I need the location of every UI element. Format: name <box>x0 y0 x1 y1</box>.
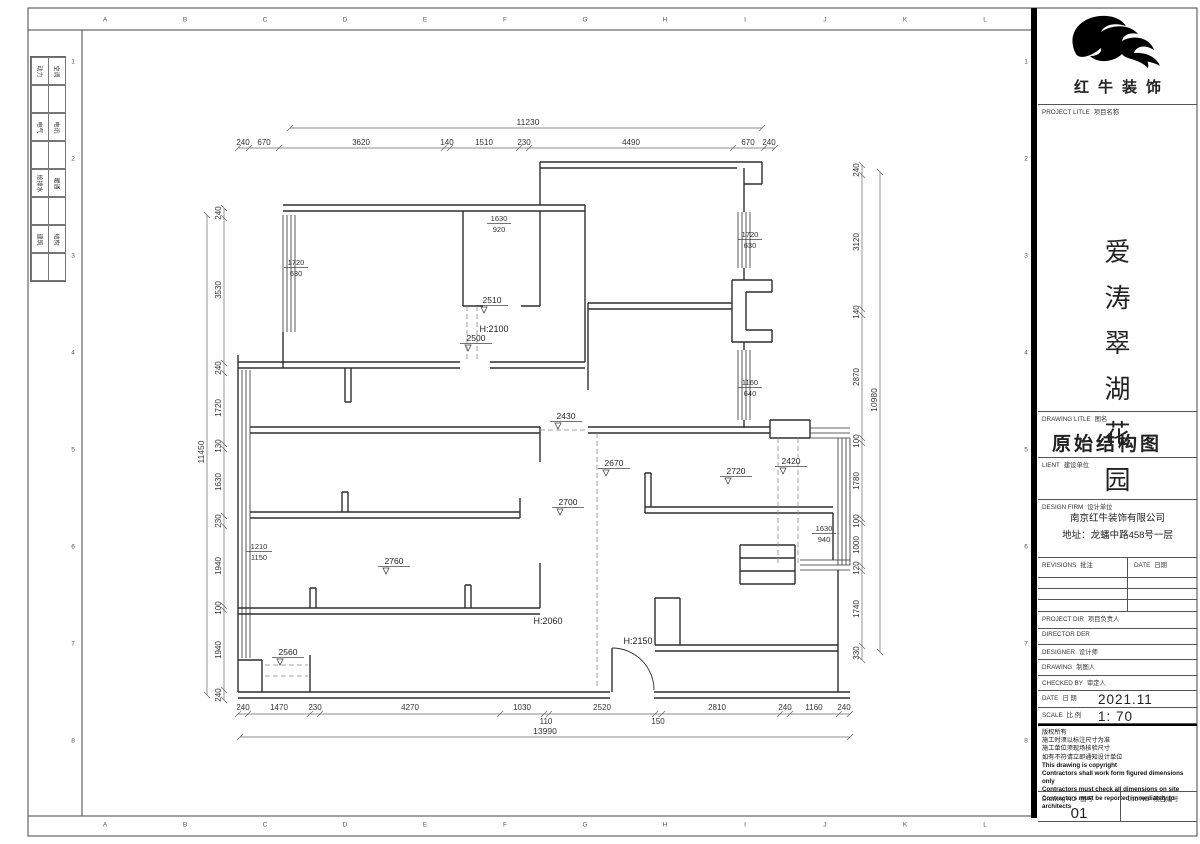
grid-number-left: 3 <box>71 253 75 260</box>
dim-label: 670 <box>257 138 271 147</box>
revisions-row <box>1038 600 1197 612</box>
grid-number-right: 3 <box>1024 253 1028 260</box>
dim-total-left: 11450 <box>196 440 206 463</box>
dim-label: 1470 <box>270 703 288 712</box>
grid-number-right: 1 <box>1024 59 1028 66</box>
svg-text:2760: 2760 <box>385 556 404 566</box>
dim-label: 140 <box>852 305 861 319</box>
dim-label: 3120 <box>852 233 861 251</box>
svg-text:1630: 1630 <box>816 524 833 533</box>
svg-text:2500: 2500 <box>467 333 486 343</box>
grid-letter-bottom: G <box>582 822 587 829</box>
dim-label: 240 <box>236 138 250 147</box>
grid-letter-top: G <box>582 17 587 24</box>
dashed-lines <box>265 306 798 688</box>
dim-label: 2870 <box>852 368 861 386</box>
dim-label: 240 <box>214 688 223 702</box>
grid-number-right: 4 <box>1024 350 1028 357</box>
revisions-row <box>1038 589 1197 600</box>
svg-text:630: 630 <box>290 269 303 278</box>
dim-label: 130 <box>214 439 223 453</box>
grid-letter-bottom: L <box>983 822 987 829</box>
grid-number-left: 1 <box>71 59 75 66</box>
svg-text:1150: 1150 <box>251 553 267 562</box>
sheet-frame <box>28 8 1197 836</box>
dim-label: 240 <box>214 206 223 220</box>
discipline-cell: 电讯 <box>48 113 66 142</box>
svg-text:640: 640 <box>744 389 757 398</box>
discipline-cell: 暖通 <box>48 169 66 198</box>
note-line: 施工单位须现场核验尺寸 <box>1042 745 1197 753</box>
grid-number-left: 5 <box>71 447 75 454</box>
job-no-label: Job NO项目编号 <box>1124 792 1179 803</box>
project-name-block: PROJECT LITLE项目名称 爱涛翠湖花园 <box>1038 105 1197 412</box>
level-mark: 2560 <box>272 647 304 665</box>
grid-letter-top: C <box>263 17 268 24</box>
svg-text:1160: 1160 <box>742 378 758 387</box>
discipline-cell-empty <box>31 196 49 225</box>
project-title-label: PROJECT LITLE项目名称 <box>1038 105 1197 116</box>
dim-label: 1940 <box>214 641 223 659</box>
dim-label: 1000 <box>852 536 861 554</box>
note-line: Contractors shall work form figured dime… <box>1042 770 1197 786</box>
date-value: 2021.11 <box>1098 692 1153 707</box>
grid-letter-top: A <box>103 17 107 24</box>
field-project-dir: PROJECT DIR项目负责人 <box>1038 612 1197 629</box>
svg-text:920: 920 <box>493 225 506 234</box>
dim-label: 1940 <box>214 557 223 575</box>
discipline-cell-empty <box>48 140 66 169</box>
field-scale: SCALE比 例 1: 70 <box>1038 708 1197 724</box>
grid-letter-bottom: D <box>343 822 348 829</box>
level-mark: 2430 <box>550 411 582 429</box>
grid-number-right: 6 <box>1024 544 1028 551</box>
discipline-cell: 空调 <box>48 57 66 86</box>
dim-label: 1630 <box>214 473 223 491</box>
dim-label: 4490 <box>622 138 640 147</box>
grid-letter-bottom: A <box>103 822 107 829</box>
grid-letter-bottom: I <box>744 822 746 829</box>
dim-label: 3620 <box>352 138 370 147</box>
grid-letter-bottom: B <box>183 822 187 829</box>
svg-text:1720: 1720 <box>288 258 305 267</box>
svg-text:2700: 2700 <box>559 497 578 507</box>
level-mark: 2700 <box>552 497 584 515</box>
drawing-no-block: Drawing NO图号 Job NO项目编号 01 <box>1038 792 1197 822</box>
bull-logo-icon <box>1038 8 1197 74</box>
grid-letter-bottom: C <box>263 822 268 829</box>
revisions-header: REVISIONS批注 DATE日期 <box>1038 558 1197 578</box>
dim-label: 240 <box>762 138 776 147</box>
field-designer: DESIGNER设计师 <box>1038 645 1197 660</box>
design-firm-address: 地址：龙蟠中路458号一层 <box>1038 528 1197 545</box>
grid-number-left: 2 <box>71 156 75 163</box>
drawing-title: 原始结构图 <box>1038 423 1197 456</box>
company-logo-text: 红牛装饰 <box>1038 76 1197 97</box>
grid-letter-top: I <box>744 17 746 24</box>
drawing-title-block: DRAWING LITLE图名 原始结构图 <box>1038 412 1197 458</box>
dim-label: 240 <box>837 703 851 712</box>
discipline-strip: 动力空调电气电讯给排水暖通建筑结构 <box>30 56 66 282</box>
svg-text:2420: 2420 <box>782 456 801 466</box>
client-label: LIENT建设单位 <box>1038 458 1197 469</box>
logo-block: 红牛装饰 <box>1038 8 1197 105</box>
note-line: 版权所有 <box>1042 729 1197 737</box>
svg-text:2670: 2670 <box>605 458 624 468</box>
window-label: 1630 920 <box>487 214 511 234</box>
revisions-row <box>1038 578 1197 589</box>
discipline-cell: 电气 <box>31 113 49 142</box>
revisions-label: REVISIONS批注 <box>1038 558 1093 569</box>
dim-total-top: 11230 <box>516 117 539 127</box>
discipline-cell: 给排水 <box>31 169 49 198</box>
grid-letter-bottom: E <box>423 822 427 829</box>
svg-text:2720: 2720 <box>727 466 746 476</box>
grid-letter-top: D <box>343 17 348 24</box>
discipline-cell-empty <box>31 252 49 281</box>
field-drawing: DRAWING制图人 <box>1038 660 1197 676</box>
svg-text:630: 630 <box>744 241 757 250</box>
discipline-cell: 建筑 <box>31 225 49 254</box>
level-mark: 2500 <box>460 333 492 351</box>
dim-label: 230 <box>308 703 322 712</box>
svg-text:2430: 2430 <box>557 411 576 421</box>
drawing-sheet: 240 670 3620 140 1510 230 4490 670 240 1… <box>0 0 1200 844</box>
dim-label: 1030 <box>513 703 531 712</box>
dim-label: 140 <box>440 138 454 147</box>
dim-label: 120 <box>852 561 861 575</box>
dim-label: 1160 <box>805 703 823 712</box>
dim-label: 240 <box>236 703 250 712</box>
notes-block: 版权所有 施工时须以标注尺寸为准 施工单位须现场核验尺寸 如有不符请立即通知设计… <box>1038 724 1197 792</box>
grid-letter-top: J <box>823 17 826 24</box>
discipline-cell-empty <box>48 252 66 281</box>
drawing-no-value: 01 <box>1038 803 1120 822</box>
height-label: H:2150 <box>623 636 652 646</box>
design-firm-label: DESIGN FIRM设计单位 <box>1038 500 1197 511</box>
level-mark: 2760 <box>378 556 410 574</box>
design-firm-block: DESIGN FIRM设计单位 南京红牛装饰有限公司 地址：龙蟠中路458号一层 <box>1038 500 1197 558</box>
height-label: H:2100 <box>479 324 508 334</box>
grid-number-right: 7 <box>1024 641 1028 648</box>
note-line: 如有不符请立即通知设计单位 <box>1042 754 1197 762</box>
grid-number-left: 8 <box>71 738 75 745</box>
dim-label: 670 <box>741 138 755 147</box>
window-multilines <box>242 212 850 658</box>
dim-label: 230 <box>517 138 531 147</box>
dim-label: 110 <box>540 717 553 726</box>
grid-letter-bottom: H <box>663 822 668 829</box>
dim-labels-right: 240 3120 140 2870 100 1780 100 1000 120 … <box>852 163 879 660</box>
discipline-cell-empty <box>31 140 49 169</box>
dim-label: 100 <box>214 601 223 615</box>
field-director: DIRECTOR DER <box>1038 629 1197 645</box>
discipline-cell: 动力 <box>31 57 49 86</box>
grid-letter-top: K <box>903 17 907 24</box>
door-arc <box>612 648 654 690</box>
grid-number-right: 5 <box>1024 447 1028 454</box>
dim-label: 3530 <box>214 281 223 299</box>
dim-label: 240 <box>214 361 223 375</box>
dim-label: 230 <box>214 514 223 528</box>
grid-number-left: 6 <box>71 544 75 551</box>
discipline-cell: 结构 <box>48 225 66 254</box>
svg-text:1210: 1210 <box>251 542 268 551</box>
client-block: LIENT建设单位 <box>1038 458 1197 500</box>
title-block: 红牛装饰 PROJECT LITLE项目名称 爱涛翠湖花园 DRAWING LI… <box>1038 8 1197 836</box>
window-label: 1720 630 <box>284 258 308 278</box>
grid-letter-top: L <box>983 17 987 24</box>
dim-labels-bottom: 240 1470 230 4270 1030 2520 2810 240 116… <box>236 703 851 736</box>
dim-label: 1780 <box>852 472 861 490</box>
note-line: This drawing is copyright <box>1042 762 1197 770</box>
grid-letter-top: F <box>503 17 507 24</box>
svg-text:2510: 2510 <box>483 295 502 305</box>
level-mark: 2420 <box>775 456 807 474</box>
grid-letter-bottom: F <box>503 822 507 829</box>
dim-labels-left: 240 3530 240 1720 130 1630 230 1940 100 … <box>196 206 223 702</box>
dim-label: 150 <box>651 717 665 726</box>
grid-number-right: 2 <box>1024 156 1028 163</box>
level-mark: 2720 <box>720 466 752 484</box>
dim-label: 1740 <box>852 600 861 618</box>
dim-labels-top: 240 670 3620 140 1510 230 4490 670 240 1… <box>236 117 776 147</box>
dim-label: 4270 <box>401 703 419 712</box>
grid-letter-top: E <box>423 17 427 24</box>
dim-label: 240 <box>852 163 861 177</box>
drawing-no-label: Drawing NO图号 <box>1038 792 1093 803</box>
design-firm-name: 南京红牛装饰有限公司 <box>1038 511 1197 528</box>
dim-total-right: 10980 <box>869 388 879 412</box>
scale-value: 1: 70 <box>1098 709 1133 724</box>
dim-label: 2810 <box>708 703 726 712</box>
grid-number-right: 8 <box>1024 738 1028 745</box>
revisions-date-label: DATE日期 <box>1130 558 1167 569</box>
svg-text:940: 940 <box>818 535 831 544</box>
dim-label: 240 <box>778 703 792 712</box>
level-mark: 2510 <box>476 295 508 313</box>
dim-label: 1510 <box>475 138 493 147</box>
floor-plan-canvas: 240 670 3620 140 1510 230 4490 670 240 1… <box>0 0 1200 844</box>
grid-letter-top: H <box>663 17 668 24</box>
svg-text:1630: 1630 <box>491 214 508 223</box>
discipline-cell-empty <box>48 84 66 113</box>
drawing-title-label: DRAWING LITLE图名 <box>1038 412 1197 423</box>
dim-label: 2520 <box>593 703 611 712</box>
height-label: H:2060 <box>533 616 562 626</box>
title-block-divider-bar <box>1031 8 1037 818</box>
svg-text:2560: 2560 <box>279 647 298 657</box>
svg-text:1720: 1720 <box>742 230 759 239</box>
discipline-cell-empty <box>48 196 66 225</box>
dim-total-bottom: 13990 <box>533 726 557 736</box>
dim-label: 100 <box>852 514 861 528</box>
field-date: DATE日 期 2021.11 <box>1038 691 1197 708</box>
grid-letter-bottom: J <box>823 822 826 829</box>
discipline-cell-empty <box>31 84 49 113</box>
grid-number-left: 7 <box>71 641 75 648</box>
dim-label: 1720 <box>214 399 223 417</box>
grid-letter-bottom: K <box>903 822 907 829</box>
field-checked-by: CHECKED BY审定人 <box>1038 676 1197 691</box>
grid-number-left: 4 <box>71 350 75 357</box>
grid-letter-top: B <box>183 17 187 24</box>
dim-label: 330 <box>852 646 861 660</box>
level-mark: 2670 <box>598 458 630 476</box>
dim-label: 100 <box>852 434 861 448</box>
